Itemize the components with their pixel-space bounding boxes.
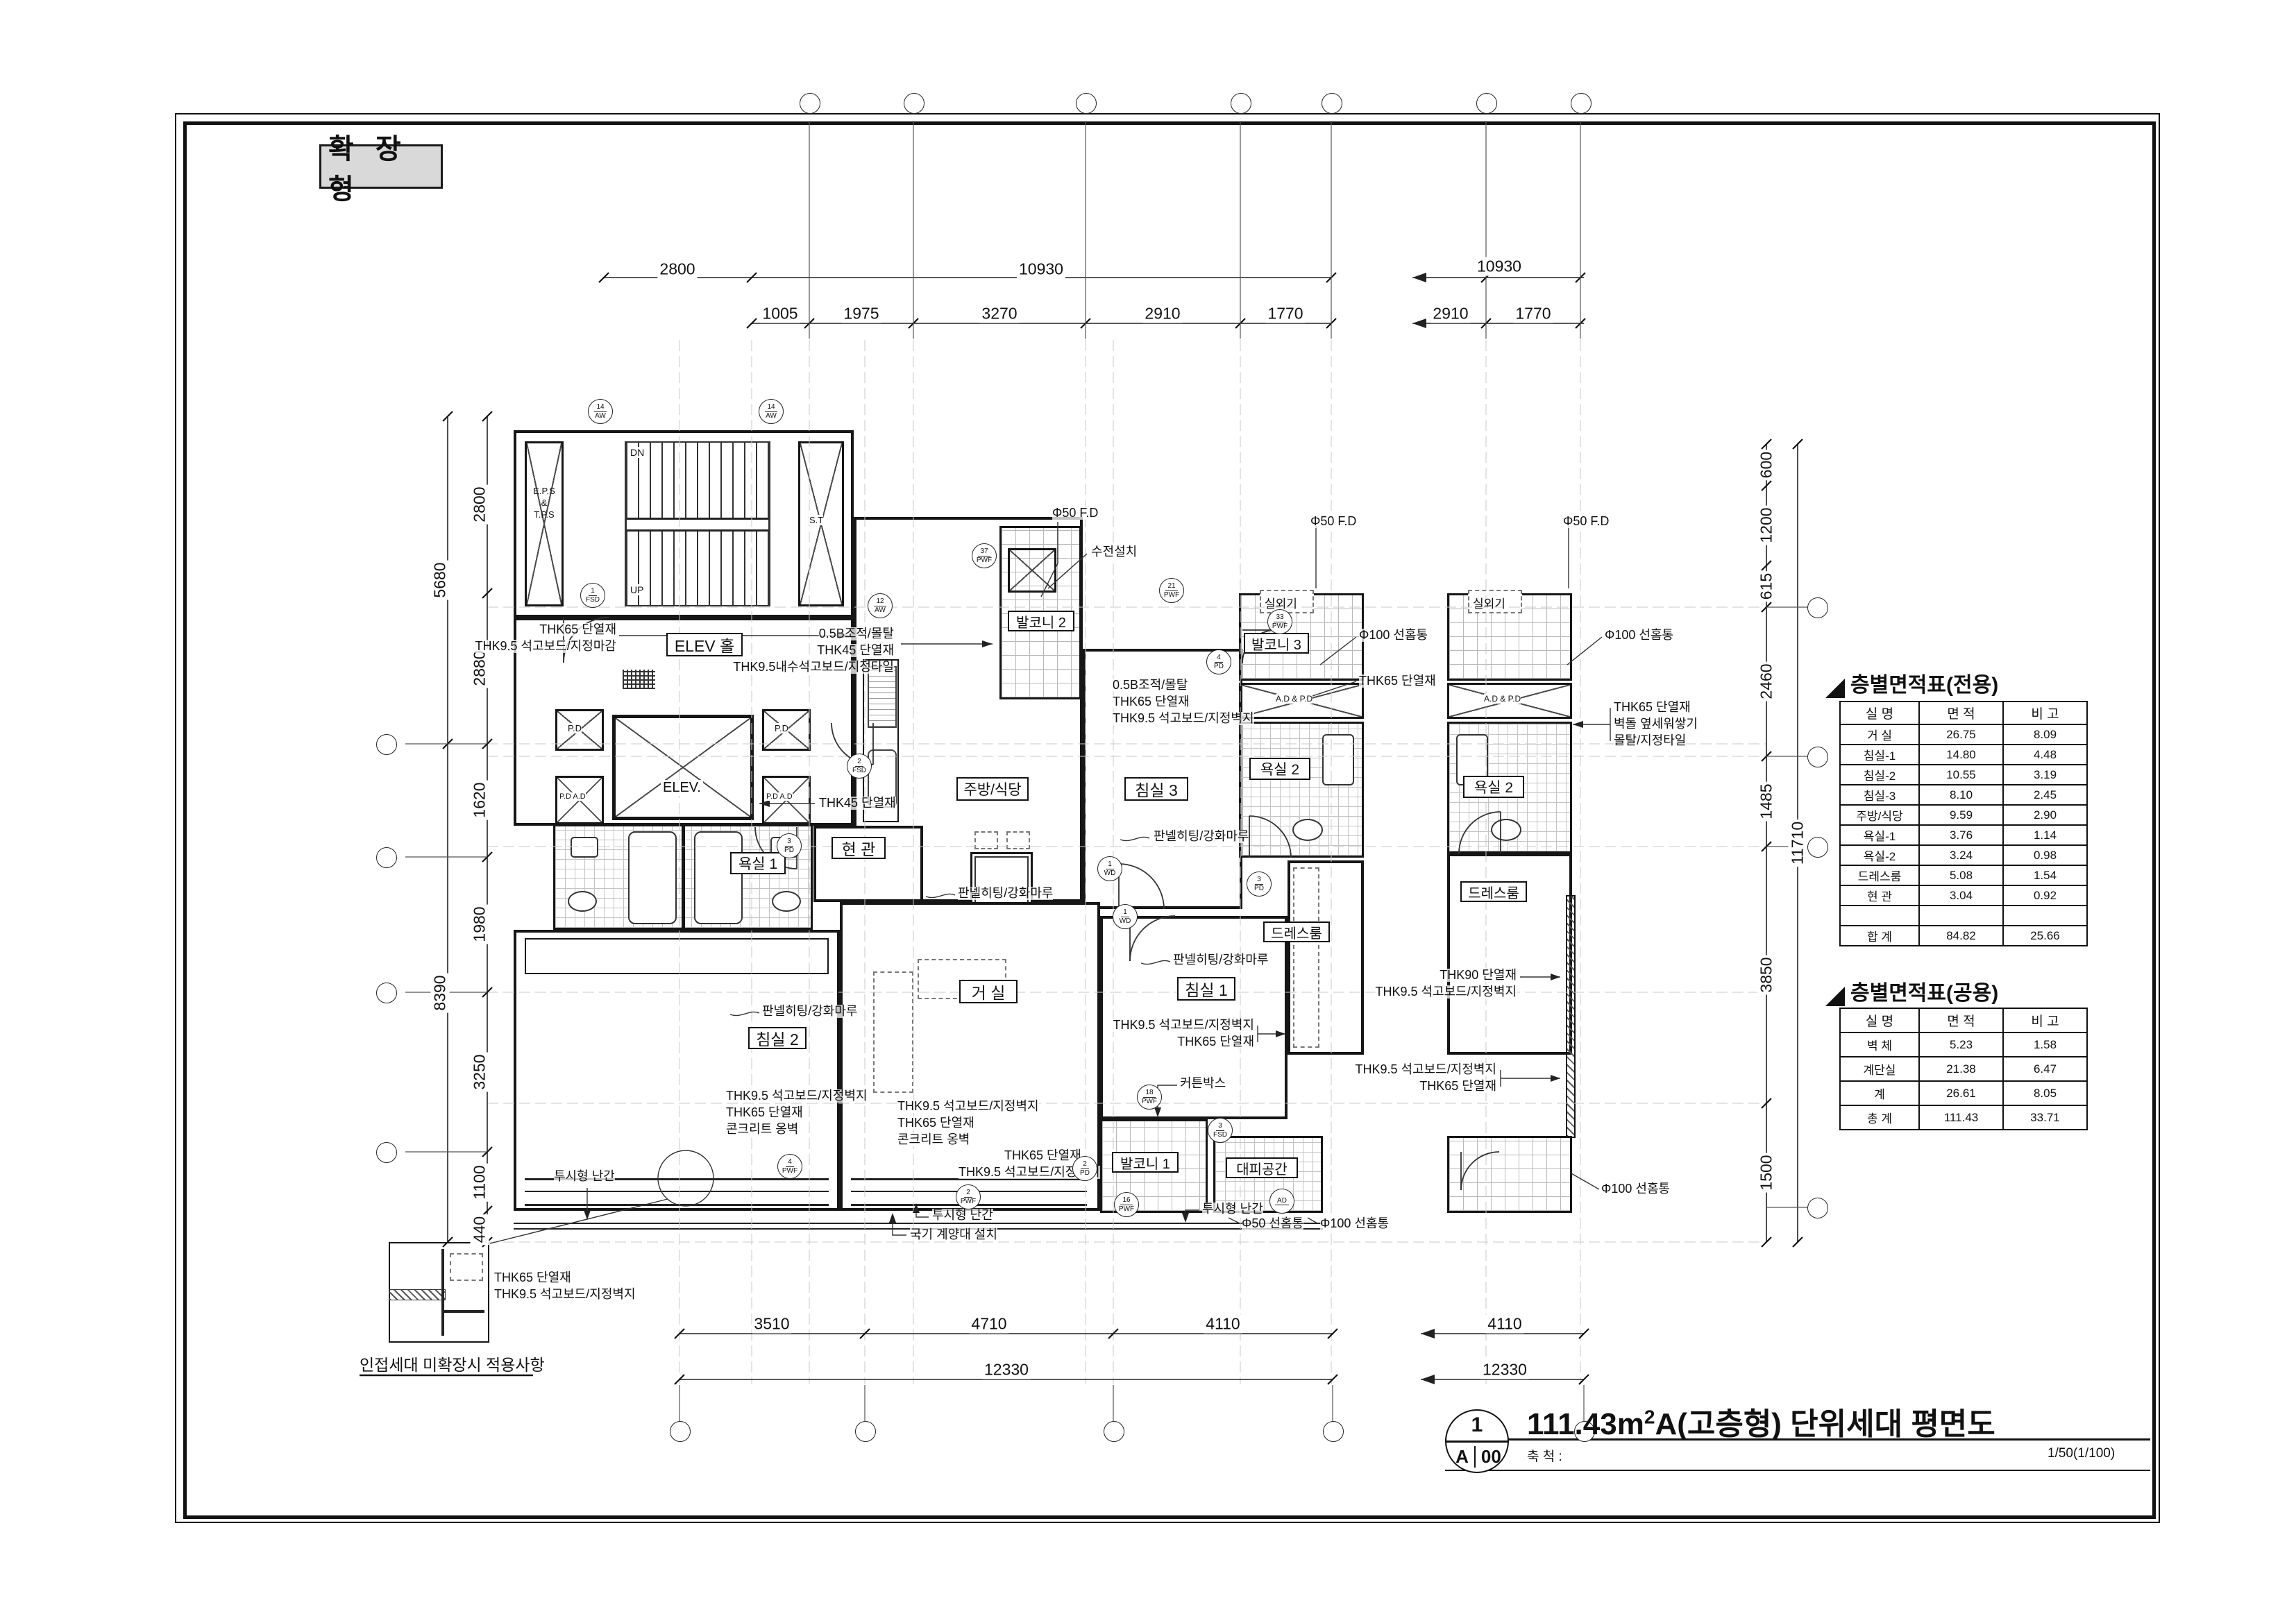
ref-marker: 12AW (868, 593, 893, 618)
grid-bubble (376, 847, 397, 868)
cell: 주방/식당 (1840, 805, 1919, 825)
dim-left: 440 (471, 1214, 489, 1245)
eps-label: E.P.S (527, 486, 561, 498)
dim-bottom: 4110 (1204, 1315, 1242, 1334)
cell: 14.80 (1919, 745, 2003, 765)
cell: 벽 체 (1840, 1033, 1919, 1057)
table-row: 합 계84.8225.66 (1840, 926, 2087, 946)
grid-bubble (800, 93, 820, 114)
cell: 침실-3 (1840, 785, 1919, 805)
cell: 현 관 (1840, 885, 1919, 906)
cell: 21.38 (1919, 1057, 2003, 1081)
grid-bubble (1807, 837, 1828, 858)
dimension-ticks (443, 273, 1803, 1384)
grid-bubble (1807, 747, 1828, 767)
dim-bottom: 4110 (1485, 1315, 1523, 1334)
ann-thk90: THK90 단열재 (1440, 969, 1517, 982)
pd-label-right: P.D (775, 723, 788, 733)
title-triangle-icon (1825, 679, 1845, 698)
cell: 2.90 (2003, 805, 2087, 825)
dim-top: 1975 (841, 305, 881, 323)
area-table-common: 실 명 면 적 비 고 벽 체5.231.58 계단실21.386.47 계26… (1839, 1008, 2086, 1130)
grid-lines (487, 340, 1766, 1384)
ref-marker: 33PWF (1267, 609, 1292, 634)
dim-right-total: 11710 (1789, 819, 1807, 867)
room-label-bedroom3: 침실 3 (1124, 777, 1188, 801)
cell: 26.61 (1919, 1081, 2003, 1105)
cell: 4.48 (2003, 745, 2087, 765)
cell (1840, 906, 1919, 926)
ref-marker: 4PWF (777, 1154, 802, 1179)
table-title-text: 층별면적표(공용) (1850, 976, 1998, 1006)
dim-left: 2880 (471, 648, 489, 688)
ref-marker: 14AW (759, 399, 784, 424)
grid-bubble (376, 1142, 397, 1163)
grid-bubble (1322, 93, 1342, 114)
ann-thk95-water: THK9.5내수석고보드/지정타일 (733, 661, 894, 674)
table-row: 계26.618.05 (1840, 1081, 2087, 1105)
ann-thk95-finish: THK9.5 석고보드/지정마감 (475, 640, 616, 653)
ann-thk95-detail: THK9.5 석고보드/지정벽지 (494, 1288, 636, 1301)
room-label-entry: 현 관 (832, 837, 886, 859)
cell: 5.08 (1919, 865, 2003, 885)
pd-label-left: P.D (568, 723, 582, 733)
title-triangle-icon (1825, 987, 1845, 1006)
ann-thk95-wall: THK9.5 석고보드/지정벽지 (897, 1100, 1039, 1113)
ann-thk65: THK65 단열재 (1004, 1149, 1081, 1162)
ann-thk65: THK65 단열재 (726, 1106, 803, 1119)
grid-bubble (904, 93, 925, 114)
room-label-bath2-left: 욕실 2 (1249, 758, 1310, 780)
table-row: 총 계111.4333.71 (1840, 1105, 2087, 1130)
table-row: 거 실26.758.09 (1840, 724, 2087, 745)
table-title-text: 층별면적표(전용) (1850, 668, 1998, 698)
cell: 3.24 (1919, 845, 2003, 865)
ann-masonry: 0.5B조적/몰탈 (819, 627, 894, 640)
ann-drain100: Φ100 선홈통 (1359, 629, 1428, 642)
grid-bubble-stems (405, 122, 1807, 1421)
ann-thk95-wall: THK9.5 석고보드/지정벽지 (1355, 1063, 1496, 1076)
cell (1919, 906, 2003, 926)
cell: 합 계 (1840, 926, 1919, 946)
dim-top: 2800 (657, 260, 697, 279)
dim-left: 3250 (471, 1052, 489, 1091)
ann-thk65: THK65 단열재 (1113, 695, 1190, 708)
grid-bubble (1104, 1421, 1124, 1442)
amp-label: & (527, 498, 561, 509)
ann-rail: 투시형 난간 (932, 1209, 993, 1222)
col-header-room: 실 명 (1840, 1008, 1919, 1033)
dim-right: 3850 (1757, 955, 1776, 994)
tps-label: T.P.S (527, 509, 561, 521)
ann-fd50: Φ50 F.D (1563, 515, 1609, 528)
room-label-elev-hall: ELEV 홀 (666, 633, 743, 656)
ann-curtain-box: 커튼박스 (1180, 1077, 1226, 1090)
dim-right: 1200 (1757, 505, 1776, 545)
ref-marker: 1WD (1097, 856, 1122, 881)
dimension-arrows (1412, 273, 1435, 1384)
room-label-balcony2: 발코니 2 (1008, 611, 1074, 631)
ref-marker: 1FSD (580, 583, 605, 608)
ref-marker: 1WD (1113, 904, 1138, 929)
dim-top: 1005 (760, 305, 800, 323)
dim-left: 2800 (471, 484, 489, 524)
dim-top: 1770 (1513, 305, 1553, 323)
room-label-bath1: 욕실 1 (730, 852, 786, 874)
table-row: 침실-38.102.45 (1840, 785, 2087, 805)
ref-marker: 18PWF (1137, 1085, 1162, 1110)
ann-rail: 투시형 난간 (554, 1170, 615, 1183)
col-header-area: 면 적 (1919, 702, 2003, 724)
cell: 거 실 (1840, 724, 1919, 745)
room-label-dressroom-left: 드레스룸 (1263, 921, 1330, 942)
ref-marker: 16PWF (1114, 1192, 1139, 1217)
room-label-living: 거 실 (959, 980, 1018, 1003)
grid-bubble (1323, 1421, 1344, 1442)
table-row (1840, 906, 2087, 926)
ann-thk65-detail: THK65 단열재 (494, 1271, 571, 1284)
ann-thk65: THK65 단열재 (1419, 1080, 1496, 1093)
area-table-exclusive: 실 명 면 적 비 고 거 실26.758.09 침실-114.804.48 침… (1839, 701, 2086, 946)
grid-bubble (376, 983, 397, 1003)
col-header-note: 비 고 (2003, 702, 2087, 724)
table-title-exclusive: 층별면적표(전용) (1825, 668, 1998, 698)
ann-fd50: Φ50 F.D (1052, 507, 1098, 520)
ann-thk95-wall: THK9.5 석고보드/지정벽지 (726, 1089, 868, 1103)
room-label-bath2-right: 욕실 2 (1463, 776, 1524, 798)
grid-bubble (376, 734, 397, 755)
table-title-common: 층별면적표(공용) (1825, 976, 1998, 1006)
adpd-label-left-unit: A.D & P.D (1276, 694, 1312, 704)
ann-thk65: THK65 단열재 (1177, 1035, 1254, 1048)
ann-drain100: Φ100 선홈통 (1601, 1182, 1670, 1196)
ref-marker: 21PWF (1159, 578, 1184, 603)
dim-right: 1485 (1757, 781, 1776, 821)
cell: 침실-1 (1840, 745, 1919, 765)
col-header-area: 면 적 (1919, 1008, 2003, 1033)
ref-marker: 3FSD (1208, 1118, 1233, 1143)
cell: 8.09 (2003, 724, 2087, 745)
elevator-label: ELEV. (661, 780, 703, 796)
cell: 3.76 (1919, 825, 2003, 845)
cell: 8.10 (1919, 785, 2003, 805)
ann-thk95-wall: THK9.5 석고보드/지정벽지 (1375, 985, 1517, 999)
sheet-digits: 00 (1481, 1446, 1501, 1468)
table-row: 주방/식당9.592.90 (1840, 805, 2087, 825)
eps-tps-label: E.P.S & T.P.S (527, 486, 561, 521)
grid-bubble (1571, 93, 1592, 114)
col-header-room: 실 명 (1840, 702, 1919, 724)
adpd-label-right-unit: A.D & P.D (1484, 694, 1521, 704)
dim-right: 1500 (1757, 1153, 1776, 1192)
ref-marker: 3PD (777, 833, 802, 858)
ann-thk65: THK65 단열재 (539, 623, 616, 636)
ann-thk65: THK65 단열재 (1359, 674, 1436, 688)
ann-panel-floor: 판넬히팅/강화마루 (1154, 830, 1249, 843)
stair-dn-label: DN (629, 447, 645, 458)
cell: 84.82 (1919, 926, 2003, 946)
ann-thk65: THK65 단열재 (1614, 701, 1691, 714)
ann-mortar-tile: 몰탈/지정타일 (1614, 734, 1686, 747)
dim-bottom: 4710 (969, 1315, 1008, 1334)
cell: 3.04 (1919, 885, 2003, 906)
title-sup: 2 (1644, 1406, 1655, 1427)
room-label-kitchen: 주방/식당 (956, 777, 1029, 801)
sheet-letter: A (1453, 1446, 1476, 1468)
cell: 총 계 (1840, 1105, 1919, 1130)
dim-left: 1620 (471, 780, 489, 819)
dim-top: 10930 (1475, 257, 1523, 276)
ann-brick-side: 벽돌 옆세워쌓기 (1614, 717, 1698, 731)
ann-rail: 투시형 난간 (1202, 1203, 1263, 1216)
dim-bottom-total: 12330 (1480, 1361, 1529, 1379)
ann-panel-floor: 판넬히팅/강화마루 (958, 887, 1053, 900)
pdad-label-right: P.D A.D (766, 792, 793, 801)
room-label-balcony3: 발코니 3 (1244, 633, 1309, 654)
table-row: 계단실21.386.47 (1840, 1057, 2087, 1081)
drawing-title: 111.43m2A(고층형) 단위세대 평면도 (1527, 1399, 1995, 1443)
dim-right: 600 (1757, 450, 1776, 480)
cell: 111.43 (1919, 1105, 2003, 1130)
title-area-value: 111.43m (1527, 1407, 1644, 1441)
stair-up-label: UP (629, 584, 645, 595)
detail-caption: 인접세대 미확장시 적용사항 (360, 1352, 545, 1375)
cell (2003, 906, 2087, 926)
cell: 2.45 (2003, 785, 2087, 805)
drawing-number: 1 (1446, 1411, 1508, 1441)
table-row: 욕실-13.761.14 (1840, 825, 2087, 845)
ref-marker: 14AW (588, 399, 613, 424)
drawing-number-bubble: 1 A 00 (1445, 1409, 1509, 1473)
ann-thk95-wall: THK9.5 석고보드/지정벽지 (1113, 712, 1254, 725)
cell: 10.55 (1919, 765, 2003, 785)
cell: 8.05 (2003, 1081, 2087, 1105)
dim-right: 615 (1757, 571, 1776, 602)
cell: 9.59 (1919, 805, 2003, 825)
ann-faucet: 수전설치 (1091, 545, 1137, 559)
dim-left: 8390 (431, 973, 450, 1012)
scale-label: 축 척 : (1527, 1446, 1562, 1465)
ann-flagpole: 국기 계양대 설치 (910, 1228, 997, 1241)
ann-drain100: Φ100 선홈통 (1320, 1217, 1389, 1230)
ann-drain50: Φ50 선홈통 (1242, 1217, 1303, 1230)
cell: 25.66 (2003, 926, 2087, 946)
dim-bottom-total: 12330 (982, 1361, 1031, 1379)
ref-marker: AD (1269, 1189, 1294, 1214)
dim-top: 3270 (979, 305, 1019, 323)
cell: 침실-2 (1840, 765, 1919, 785)
ann-thk45: THK45 단열재 (817, 644, 894, 657)
titleblock-rule-bottom (1445, 1470, 2150, 1471)
ref-marker: 37PWF (972, 543, 997, 568)
col-header-note: 비 고 (2003, 1008, 2087, 1033)
ann-concrete: 콘크리트 옹벽 (897, 1133, 970, 1146)
ann-concrete: 콘크리트 옹벽 (726, 1123, 798, 1136)
ann-panel-floor: 판넬히팅/강화마루 (1173, 953, 1268, 967)
st-label: S.T (809, 515, 823, 525)
table-row: 침실-114.804.48 (1840, 745, 2087, 765)
cell: 0.98 (2003, 845, 2087, 865)
table-row: 침실-210.553.19 (1840, 765, 2087, 785)
cell: 드레스룸 (1840, 865, 1919, 885)
ref-marker: 2PD (1072, 1156, 1097, 1181)
grid-bubble (670, 1421, 691, 1442)
cell: 3.19 (2003, 765, 2087, 785)
sheet-number: A 00 (1446, 1441, 1508, 1472)
grid-bubble (1231, 93, 1251, 114)
dim-top: 10930 (1017, 260, 1065, 279)
ref-marker: 4PD (1206, 649, 1231, 674)
ann-thk45: THK45 단열재 (819, 797, 896, 810)
dim-left: 1980 (471, 904, 489, 944)
ref-marker: 2FSD (847, 754, 872, 779)
ann-panel-floor: 판넬히팅/강화마루 (762, 1005, 857, 1018)
dim-right: 2460 (1757, 661, 1776, 701)
table-row: 벽 체5.231.58 (1840, 1033, 2087, 1057)
scale-value: 1/50(1/100) (2048, 1446, 2115, 1461)
outdoor-unit-label-right: 실외기 (1473, 594, 1505, 611)
drawing-sheet: 확 장 형 (0, 0, 2296, 1623)
room-label-dressroom-right: 드레스룸 (1460, 881, 1527, 902)
room-label-bedroom2: 침실 2 (748, 1027, 807, 1049)
cell: 계 (1840, 1081, 1919, 1105)
table-row: 욕실-23.240.98 (1840, 845, 2087, 865)
room-label-shelter: 대피공간 (1226, 1157, 1298, 1178)
dim-top: 2910 (1430, 305, 1470, 323)
room-label-balcony1: 발코니 1 (1112, 1152, 1179, 1173)
grid-bubble (855, 1421, 876, 1442)
cell: 33.71 (2003, 1105, 2087, 1130)
cell: 계단실 (1840, 1057, 1919, 1081)
grid-bubble (1807, 597, 1828, 618)
ann-fd50: Φ50 F.D (1310, 515, 1356, 528)
ref-marker: 2PWF (956, 1184, 981, 1209)
grid-bubble (1476, 93, 1497, 114)
cell: 26.75 (1919, 724, 2003, 745)
cell: 6.47 (2003, 1057, 2087, 1081)
dim-left: 5680 (431, 560, 450, 600)
dim-top: 1770 (1265, 305, 1305, 323)
title-suffix: A(고층형) 단위세대 평면도 (1655, 1407, 1995, 1441)
ann-masonry: 0.5B조적/몰탈 (1113, 679, 1188, 692)
pdad-label-left: P.D A.D (559, 792, 586, 801)
cell: 욕실-1 (1840, 825, 1919, 845)
grid-bubble (1807, 1198, 1828, 1218)
dim-bottom: 3510 (752, 1315, 791, 1334)
cell: 0.92 (2003, 885, 2087, 906)
dim-left: 1100 (471, 1163, 489, 1201)
ann-thk95-wall: THK9.5 석고보드/지정벽지 (1113, 1019, 1254, 1032)
cell: 욕실-2 (1840, 845, 1919, 865)
ann-drain100: Φ100 선홈통 (1605, 629, 1673, 642)
ann-thk65: THK65 단열재 (897, 1116, 974, 1130)
table-row: 현 관3.040.92 (1840, 885, 2087, 906)
dim-top: 2910 (1142, 305, 1182, 323)
cell: 5.23 (1919, 1033, 2003, 1057)
cell: 1.58 (2003, 1033, 2087, 1057)
cell: 1.14 (2003, 825, 2087, 845)
room-label-bedroom1: 침실 1 (1177, 977, 1235, 1001)
grid-bubble (1076, 93, 1097, 114)
cell: 1.54 (2003, 865, 2087, 885)
table-row: 드레스룸5.081.54 (1840, 865, 2087, 885)
ref-marker: 3PD (1247, 872, 1272, 897)
